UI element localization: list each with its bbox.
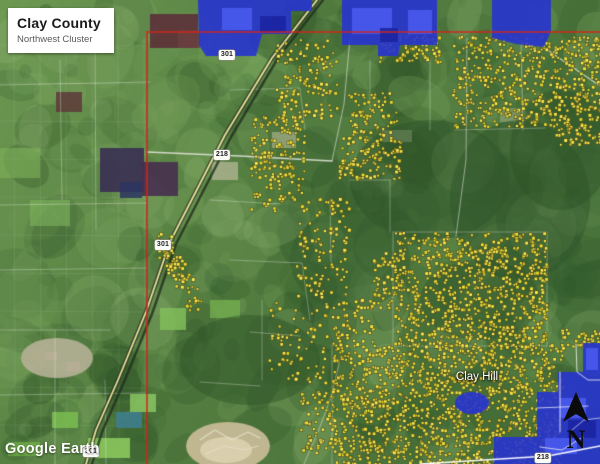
north-label: N [567,425,586,454]
route-shield: 301 [155,240,171,250]
route-shield: 301 [219,50,235,60]
map-viewport[interactable]: Clay County Northwest Cluster Google Ear… [0,0,600,464]
route-shield: 218 [535,453,551,463]
place-label: Clay Hill [456,371,498,383]
satellite-map-canvas[interactable] [0,0,600,464]
map-subtitle: Northwest Cluster [17,34,105,45]
title-card: Clay County Northwest Cluster [8,8,114,53]
north-arrow: N [554,390,598,456]
north-arrow-icon [563,392,589,422]
google-earth-logo: Google Earth [5,441,100,457]
map-title: Clay County [17,15,105,31]
route-shield: 218 [214,150,230,160]
